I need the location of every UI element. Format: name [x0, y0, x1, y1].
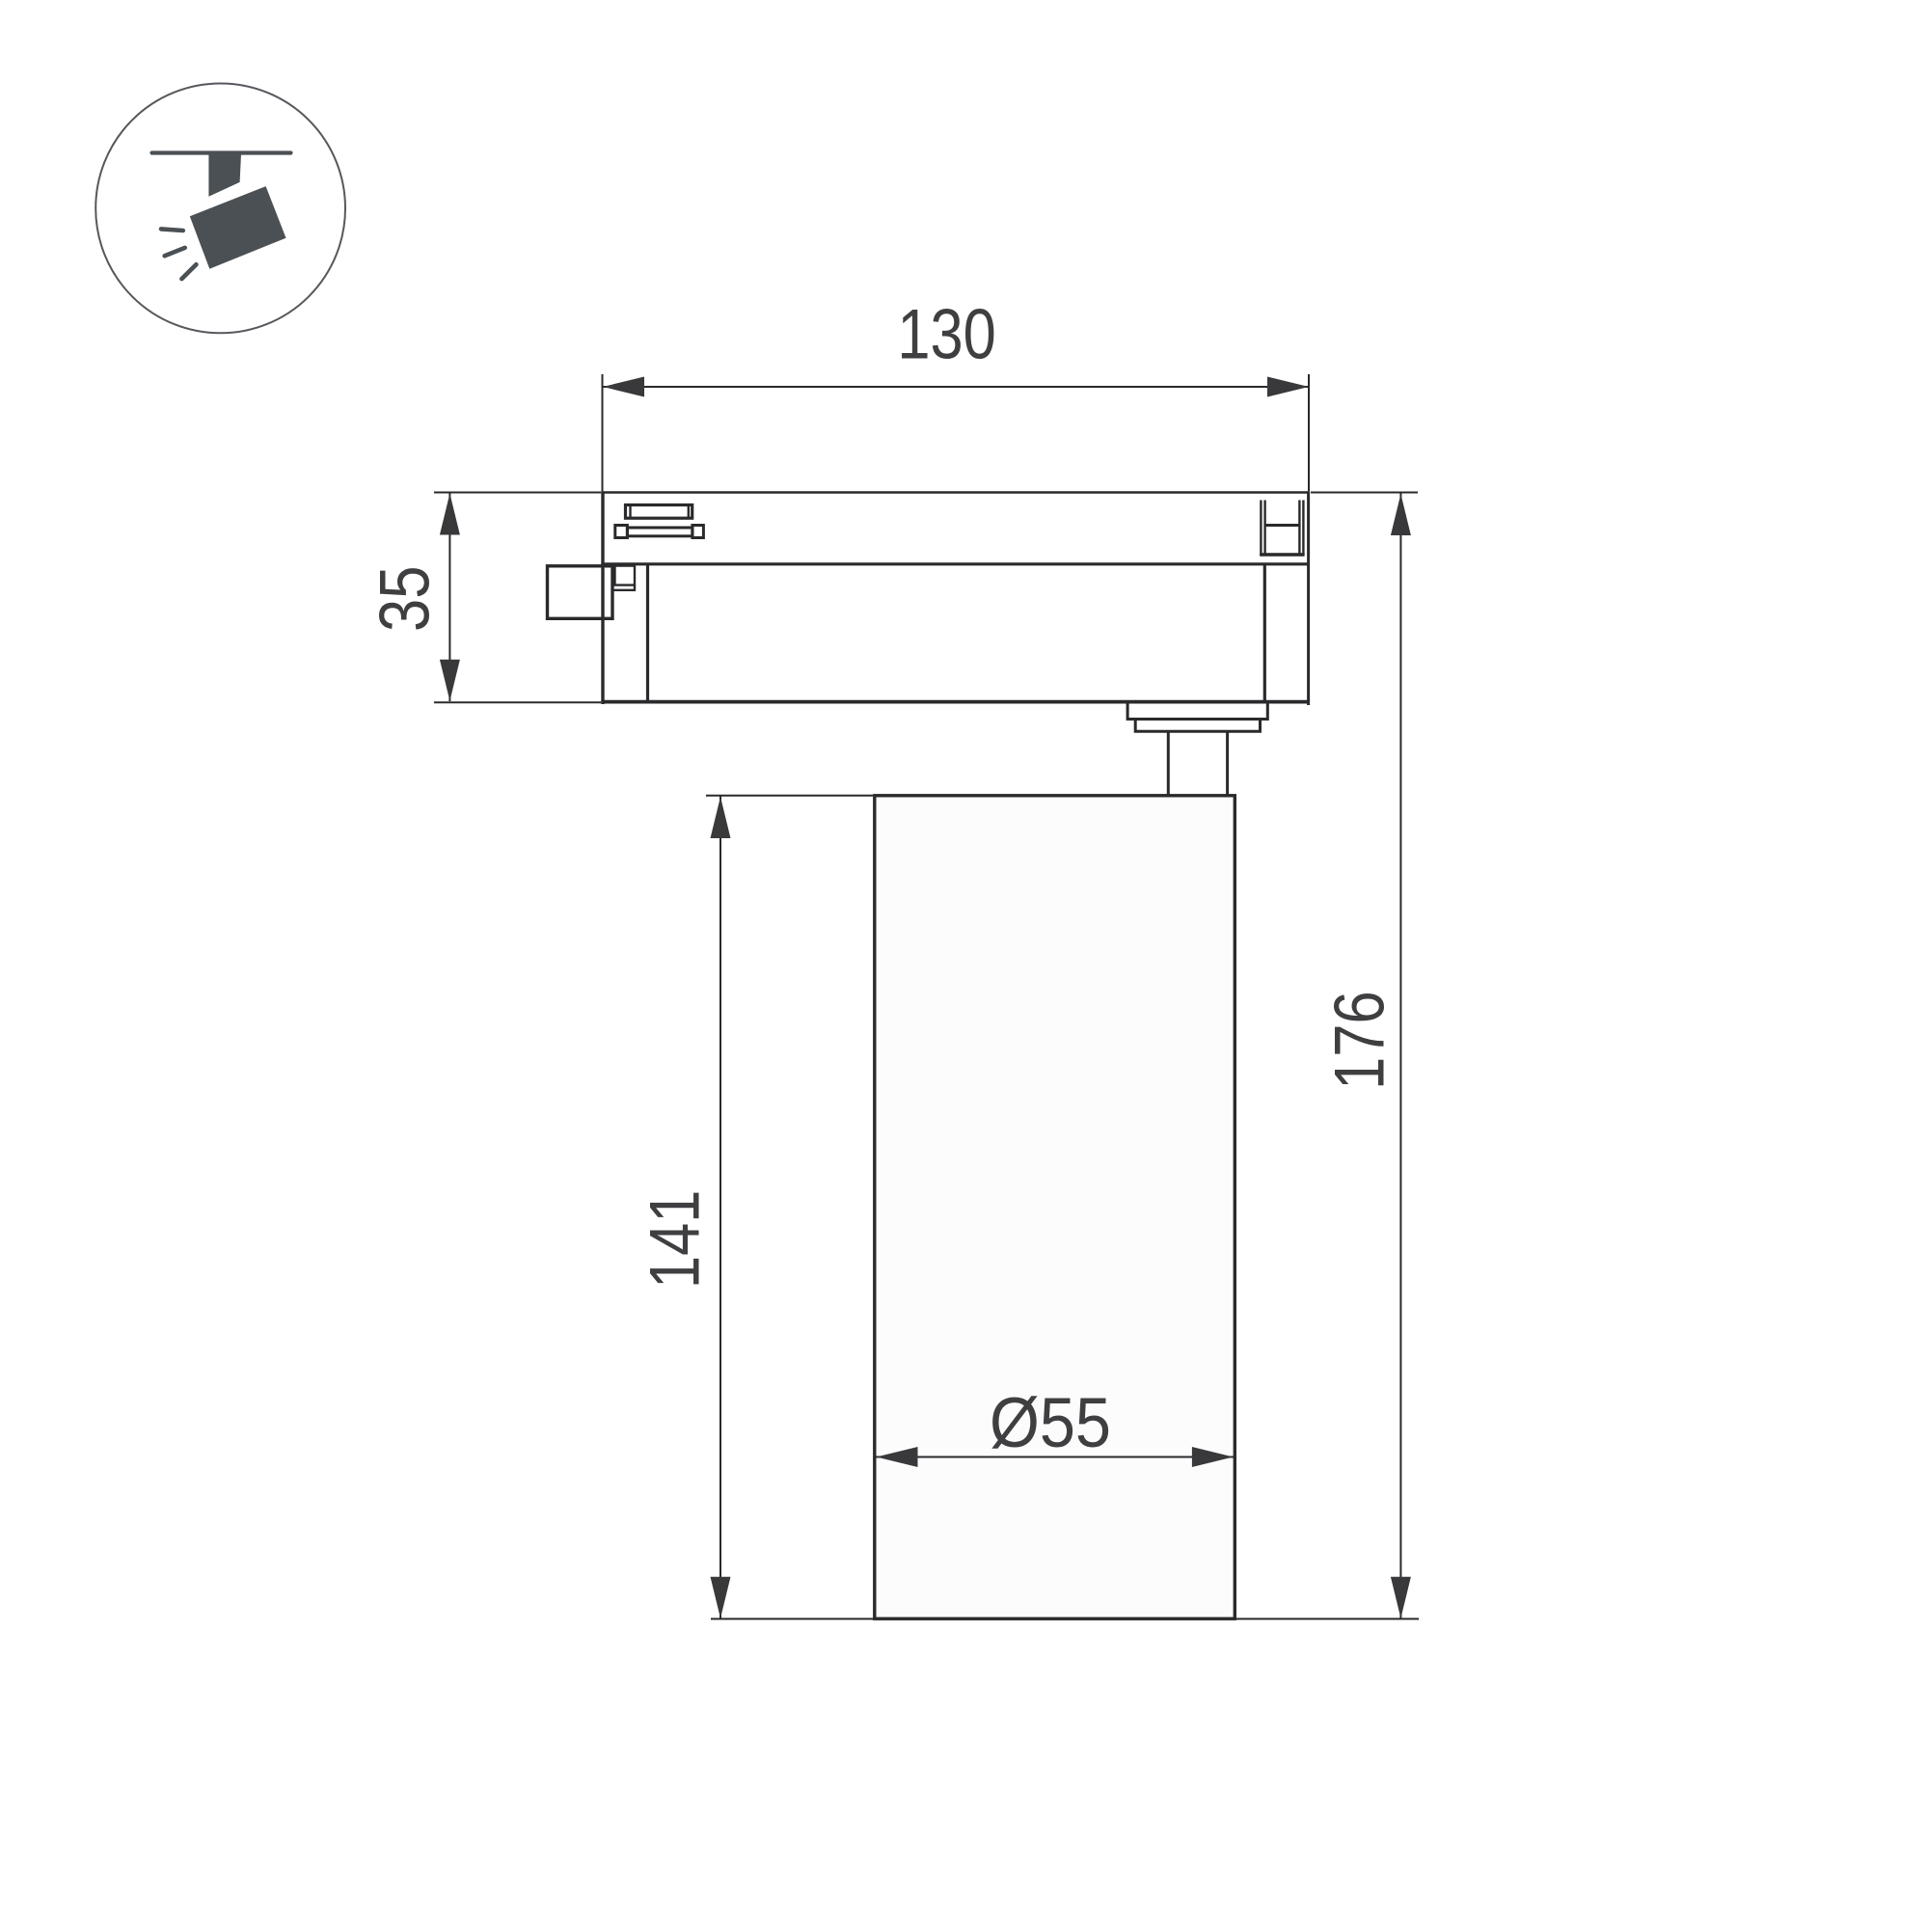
svg-text:35: 35 — [366, 566, 445, 632]
svg-text:130: 130 — [897, 296, 996, 374]
svg-text:Ø55: Ø55 — [990, 1384, 1111, 1462]
svg-text:176: 176 — [1321, 991, 1399, 1090]
svg-text:141: 141 — [637, 1190, 715, 1290]
